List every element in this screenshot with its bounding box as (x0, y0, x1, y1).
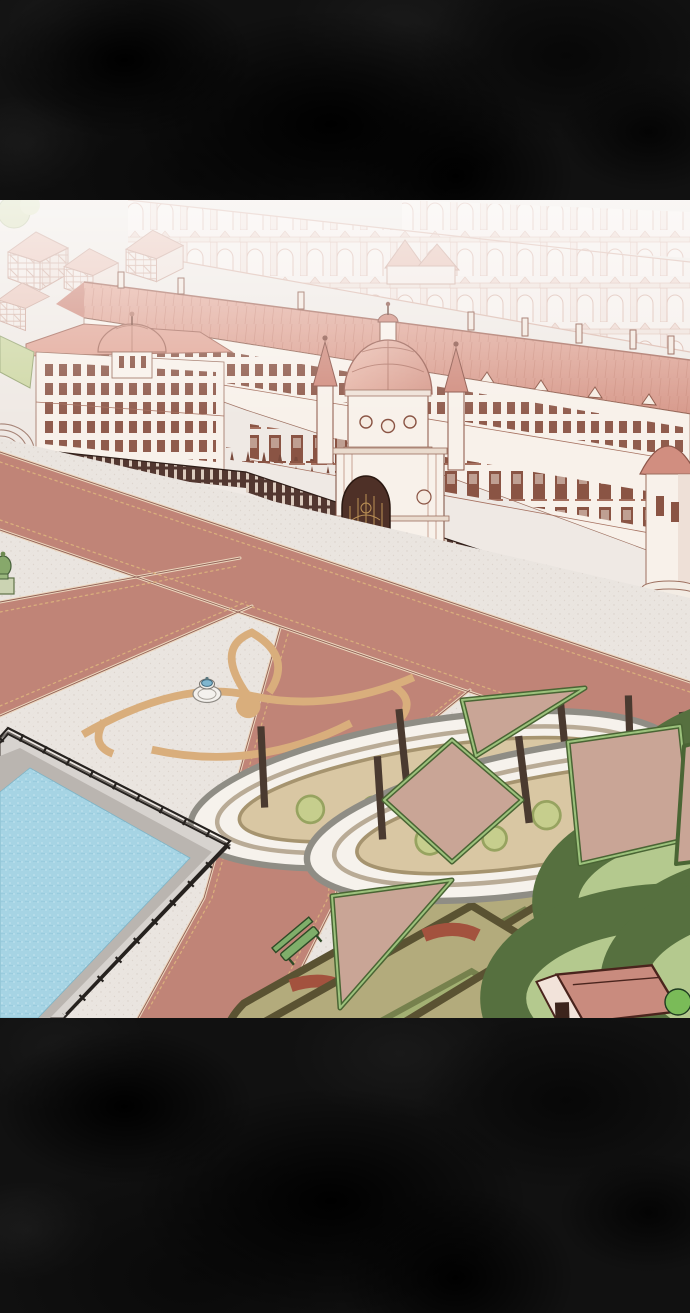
letterbox-bottom (0, 1018, 690, 1313)
atmospheric-haze (0, 200, 690, 420)
letterbox-top (0, 0, 690, 200)
palace-illustration-panel (0, 200, 690, 1018)
corner-bush (665, 989, 690, 1015)
webtoon-page (0, 0, 690, 1313)
